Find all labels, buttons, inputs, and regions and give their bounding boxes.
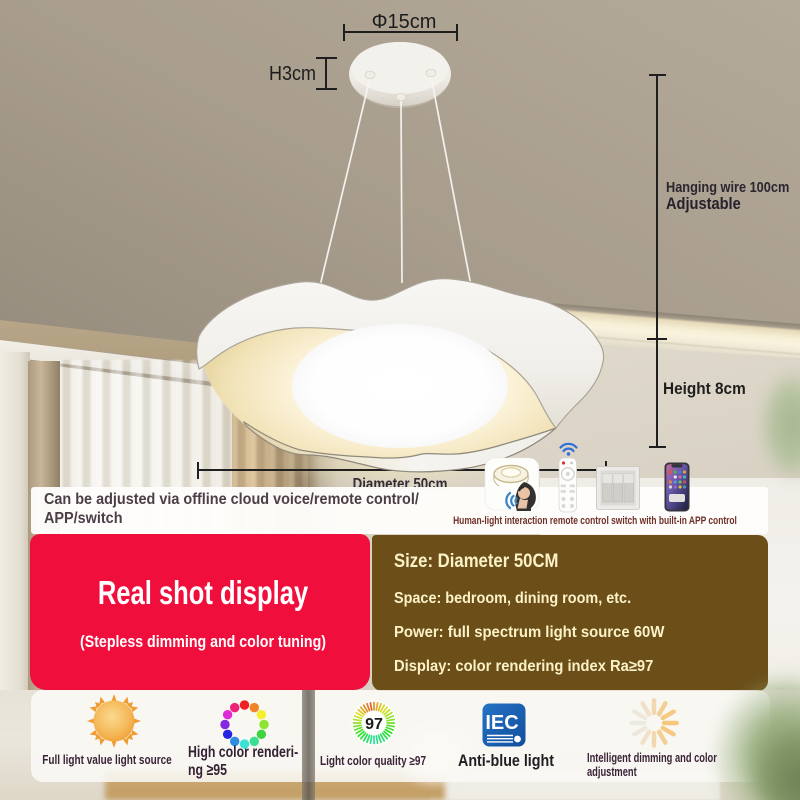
svg-text:IEC: IEC	[485, 712, 518, 734]
svg-text:97: 97	[365, 716, 383, 733]
